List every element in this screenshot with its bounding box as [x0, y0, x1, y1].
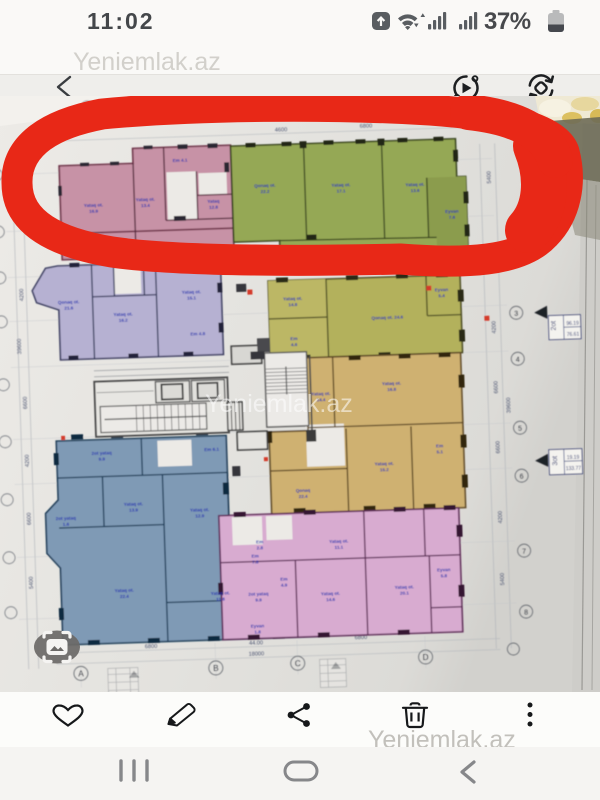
svg-text:Yataq ot.: Yataq ot.	[382, 381, 401, 387]
svg-text:6: 6	[520, 474, 524, 481]
svg-text:14.6: 14.6	[326, 597, 336, 602]
svg-text:Em: Em	[280, 577, 287, 582]
svg-text:12.8: 12.8	[209, 205, 219, 210]
svg-text:2ot yataq: 2ot yataq	[91, 450, 112, 456]
svg-text:11.8: 11.8	[216, 597, 225, 602]
svg-text:6600: 6600	[23, 397, 29, 410]
svg-text:5400: 5400	[487, 171, 493, 184]
svg-text:4600: 4600	[275, 127, 288, 133]
svg-text:4: 4	[516, 357, 520, 364]
svg-text:Yataq ot.: Yataq ot.	[405, 182, 424, 188]
svg-text:9.9: 9.9	[99, 456, 106, 461]
svg-text:Qonaq ot. 24.6: Qonaq ot. 24.6	[371, 315, 403, 321]
svg-text:16.8: 16.8	[387, 387, 397, 392]
svg-text:19.19: 19.19	[567, 455, 580, 461]
svg-text:5400: 5400	[500, 573, 506, 586]
svg-text:Em: Em	[290, 336, 297, 341]
svg-text:37%: 37%	[484, 8, 531, 34]
svg-text:Em: Em	[256, 539, 263, 544]
svg-text:16.9: 16.9	[89, 209, 99, 214]
svg-text:4.6: 4.6	[291, 342, 298, 347]
svg-text:4200: 4200	[498, 511, 504, 524]
svg-text:21.6: 21.6	[64, 305, 74, 310]
svg-text:Yataq ot.: Yataq ot.	[329, 538, 348, 544]
svg-text:5.4: 5.4	[438, 293, 445, 298]
svg-text:22.4: 22.4	[299, 494, 309, 499]
svg-text:Eyvan: Eyvan	[437, 567, 451, 572]
svg-text:C: C	[295, 659, 301, 668]
svg-text:Qonaq ot.: Qonaq ot.	[58, 299, 80, 305]
svg-text:A: A	[78, 669, 84, 678]
svg-text:2ot yataq: 2ot yataq	[56, 515, 77, 521]
svg-text:3: 3	[514, 311, 518, 318]
svg-text:7: 7	[522, 549, 526, 556]
svg-text:15.2: 15.2	[380, 467, 390, 472]
svg-text:Yataq ot.: Yataq ot.	[190, 507, 209, 513]
svg-text:Yeniemlak.az: Yeniemlak.az	[205, 390, 353, 418]
svg-text:5400: 5400	[29, 576, 35, 589]
svg-text:6800: 6800	[360, 123, 373, 129]
svg-text:Yataq ot.: Yataq ot.	[136, 197, 155, 203]
svg-text:2ot yataq: 2ot yataq	[248, 591, 269, 597]
svg-text:3ot: 3ot	[552, 456, 559, 466]
svg-text:4.9: 4.9	[281, 583, 288, 588]
svg-text:7.6: 7.6	[449, 215, 456, 220]
svg-text:44.00: 44.00	[249, 640, 263, 646]
svg-text:5.1: 5.1	[437, 449, 444, 454]
svg-text:76.61: 76.61	[567, 332, 580, 338]
svg-text:22.4: 22.4	[120, 594, 130, 599]
svg-text:133.77: 133.77	[566, 466, 582, 473]
svg-text:Em 6.1: Em 6.1	[204, 447, 219, 453]
svg-text:Yataq ot.: Yataq ot.	[211, 590, 230, 596]
svg-text:17.1: 17.1	[337, 188, 347, 193]
svg-text:39600: 39600	[506, 397, 513, 413]
svg-text:1.8: 1.8	[254, 629, 261, 634]
svg-text:11.1: 11.1	[334, 545, 343, 550]
svg-text:2.8: 2.8	[257, 545, 264, 550]
svg-text:6600: 6600	[495, 441, 501, 454]
svg-text:5.8: 5.8	[441, 573, 448, 578]
svg-text:13.4: 13.4	[141, 203, 151, 208]
svg-text:15.1: 15.1	[187, 295, 197, 300]
svg-text:13.9: 13.9	[129, 507, 139, 512]
svg-text:Yataq ot.: Yataq ot.	[84, 202, 103, 208]
svg-text:39600: 39600	[17, 339, 24, 355]
svg-text:12.9: 12.9	[195, 513, 205, 518]
svg-text:22.2: 22.2	[261, 189, 271, 194]
svg-text:13.6: 13.6	[411, 188, 421, 193]
svg-text:Yataq: Yataq	[207, 199, 220, 204]
svg-text:Yataq ot.: Yataq ot.	[321, 591, 340, 597]
svg-text:Em: Em	[436, 443, 443, 448]
svg-text:20.1: 20.1	[400, 590, 410, 595]
svg-text:6600: 6600	[493, 381, 499, 394]
svg-text:Yataq ot.: Yataq ot.	[115, 588, 134, 594]
svg-text:4200: 4200	[491, 321, 497, 334]
svg-text:D: D	[423, 653, 429, 662]
svg-text:6600: 6600	[27, 512, 33, 525]
svg-text:18000: 18000	[249, 651, 265, 658]
svg-text:1.6: 1.6	[63, 522, 70, 527]
svg-text:9.9: 9.9	[255, 597, 262, 602]
svg-text:96.19: 96.19	[566, 321, 579, 327]
svg-text:Eyvan: Eyvan	[445, 209, 459, 214]
svg-text:4200: 4200	[25, 455, 31, 468]
svg-text:6800: 6800	[145, 644, 158, 650]
svg-text:Eyvan: Eyvan	[435, 287, 449, 292]
svg-text:Qonaq: Qonaq	[296, 488, 311, 493]
svg-text:Em 4.8: Em 4.8	[190, 331, 205, 337]
svg-text:Yataq ot.: Yataq ot.	[375, 461, 394, 467]
svg-text:16.2: 16.2	[119, 318, 129, 323]
svg-text:2ot: 2ot	[551, 321, 558, 331]
svg-text:Em 4.1: Em 4.1	[173, 158, 188, 164]
svg-text:B: B	[213, 664, 219, 673]
svg-text:Yataq ot.: Yataq ot.	[124, 501, 143, 507]
svg-text:Yataq ot.: Yataq ot.	[395, 584, 414, 590]
svg-text:Yataq ot.: Yataq ot.	[331, 182, 350, 188]
svg-text:Yataq ot.: Yataq ot.	[283, 296, 302, 302]
svg-text:Yataq ot.: Yataq ot.	[113, 312, 132, 318]
svg-text:Em: Em	[251, 553, 258, 558]
svg-text:5: 5	[518, 426, 522, 433]
svg-text:8: 8	[524, 610, 528, 617]
svg-text:Yataq ot.: Yataq ot.	[182, 289, 201, 295]
svg-text:Eyvan: Eyvan	[251, 623, 265, 628]
svg-text:4200: 4200	[19, 289, 25, 302]
svg-text:Qonaq ot.: Qonaq ot.	[254, 183, 276, 189]
svg-text:7.8: 7.8	[252, 559, 259, 564]
svg-text:14.8: 14.8	[288, 302, 298, 307]
